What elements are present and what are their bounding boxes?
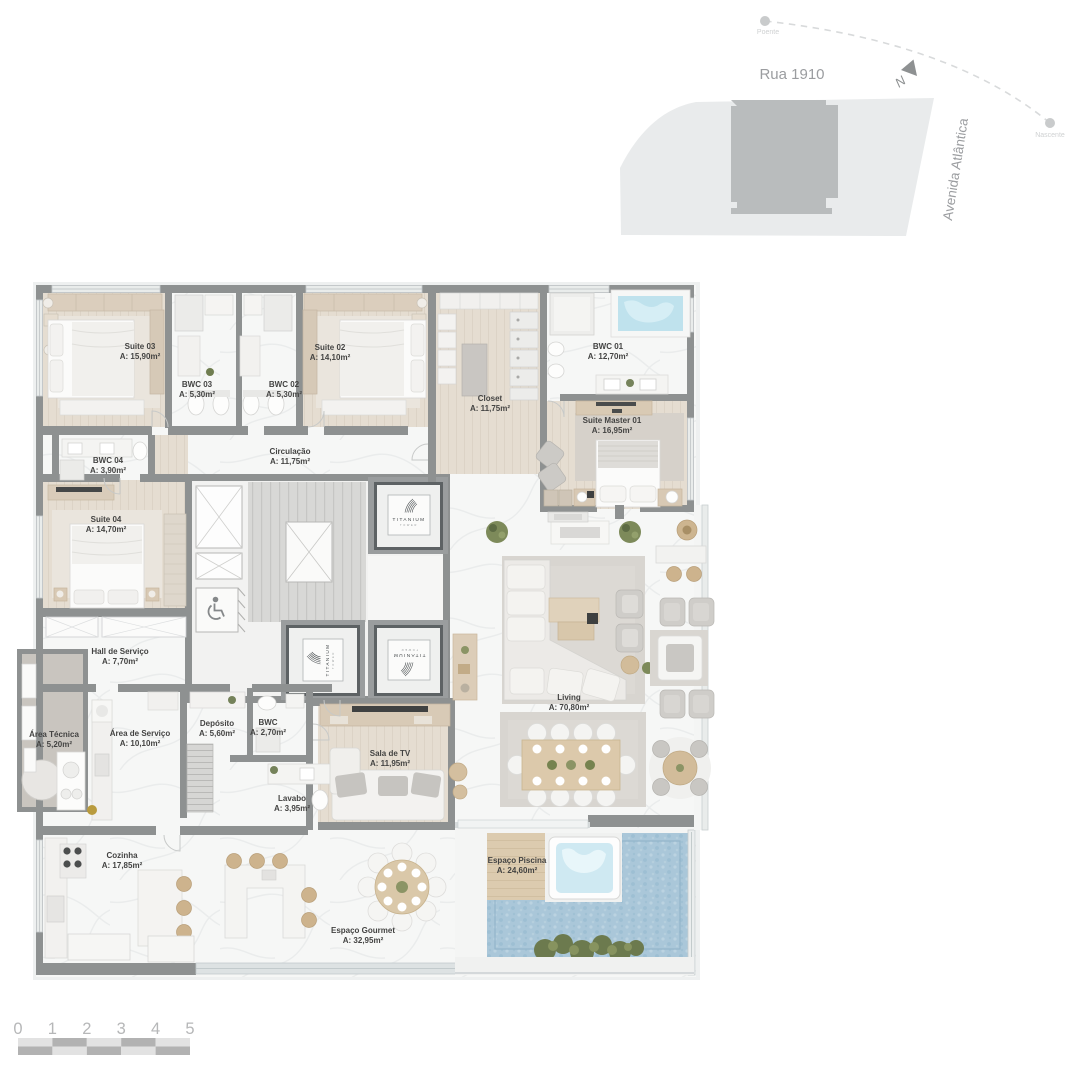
- svg-text:Área de Serviço: Área de Serviço: [110, 729, 171, 738]
- svg-text:A: 2,70m²: A: 2,70m²: [250, 728, 286, 737]
- svg-text:A: 10,10m²: A: 10,10m²: [120, 739, 161, 748]
- svg-text:Área Técnica: Área Técnica: [29, 730, 79, 739]
- svg-text:Lavabo: Lavabo: [278, 794, 306, 803]
- svg-text:Hall de Serviço: Hall de Serviço: [91, 647, 148, 656]
- svg-text:Espaço Gourmet: Espaço Gourmet: [331, 926, 395, 935]
- svg-text:A: 7,70m²: A: 7,70m²: [102, 657, 138, 666]
- svg-text:BWC 02: BWC 02: [269, 380, 300, 389]
- svg-text:BWC: BWC: [258, 718, 277, 727]
- svg-text:Suite 03: Suite 03: [125, 342, 156, 351]
- svg-text:Suite 02: Suite 02: [315, 343, 346, 352]
- svg-text:A: 11,75m²: A: 11,75m²: [470, 404, 510, 413]
- svg-text:A: 3,90m²: A: 3,90m²: [90, 466, 126, 475]
- svg-text:A: 11,75m²: A: 11,75m²: [270, 457, 310, 466]
- svg-text:A: 5,30m²: A: 5,30m²: [179, 390, 215, 399]
- svg-text:BWC 03: BWC 03: [182, 380, 213, 389]
- svg-text:A: 32,95m²: A: 32,95m²: [343, 936, 384, 945]
- svg-text:A: 17,85m²: A: 17,85m²: [102, 861, 143, 870]
- svg-text:A: 5,20m²: A: 5,20m²: [36, 740, 72, 749]
- svg-text:Living: Living: [557, 693, 581, 702]
- svg-text:BWC 01: BWC 01: [593, 342, 624, 351]
- svg-text:A: 15,90m²: A: 15,90m²: [120, 352, 161, 361]
- svg-text:A: 5,30m²: A: 5,30m²: [266, 390, 302, 399]
- svg-text:BWC 04: BWC 04: [93, 456, 124, 465]
- svg-text:Suite 04: Suite 04: [91, 515, 122, 524]
- svg-text:Rua 1910: Rua 1910: [759, 66, 824, 83]
- svg-text:Circulação: Circulação: [270, 447, 311, 456]
- svg-text:A: 70,80m²: A: 70,80m²: [549, 703, 590, 712]
- svg-text:A: 11,95m²: A: 11,95m²: [370, 759, 410, 768]
- svg-text:Poente: Poente: [757, 29, 779, 36]
- svg-text:A: 12,70m²: A: 12,70m²: [588, 352, 629, 361]
- svg-text:Depósito: Depósito: [200, 719, 234, 728]
- svg-text:Sala de TV: Sala de TV: [370, 749, 411, 758]
- svg-text:A: 5,60m²: A: 5,60m²: [199, 729, 235, 738]
- svg-text:Closet: Closet: [478, 394, 503, 403]
- svg-text:Cozinha: Cozinha: [106, 851, 138, 860]
- svg-text:2: 2: [82, 1020, 91, 1038]
- svg-text:A: 16,95m²: A: 16,95m²: [592, 426, 633, 435]
- svg-text:A: 14,10m²: A: 14,10m²: [310, 353, 351, 362]
- svg-text:3: 3: [117, 1020, 126, 1038]
- svg-text:Suite Master 01: Suite Master 01: [583, 416, 642, 425]
- svg-text:1: 1: [48, 1020, 57, 1038]
- svg-text:Espaço Piscina: Espaço Piscina: [488, 856, 547, 865]
- svg-text:Nascente: Nascente: [1035, 132, 1065, 139]
- svg-text:4: 4: [151, 1020, 160, 1038]
- svg-text:A: 24,60m²: A: 24,60m²: [497, 866, 538, 875]
- svg-text:0: 0: [13, 1020, 22, 1038]
- svg-text:5: 5: [185, 1020, 194, 1038]
- svg-text:A: 14,70m²: A: 14,70m²: [86, 525, 127, 534]
- svg-text:A: 3,95m²: A: 3,95m²: [274, 804, 310, 813]
